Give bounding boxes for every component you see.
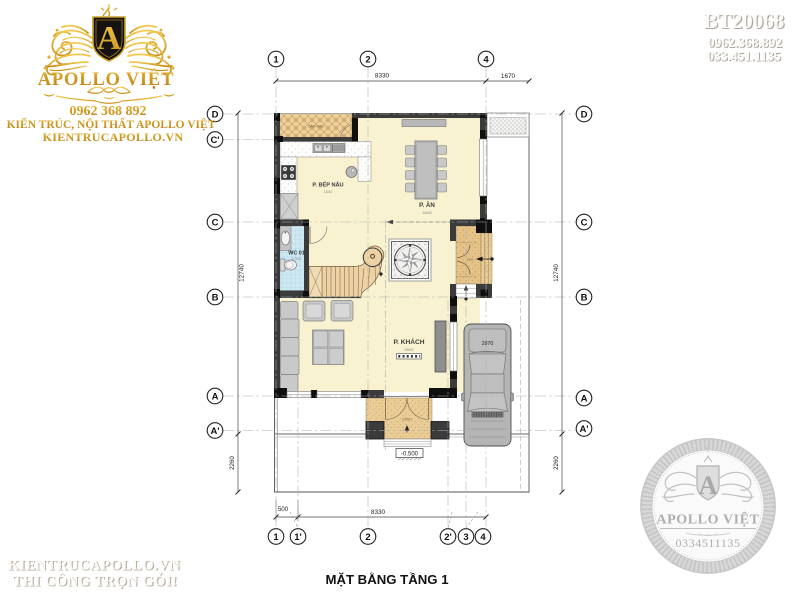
svg-text:12740: 12740 bbox=[239, 264, 246, 282]
svg-text:C': C' bbox=[210, 135, 219, 146]
svg-text:11M2: 11M2 bbox=[324, 190, 333, 194]
svg-text:A: A bbox=[699, 471, 718, 500]
svg-text:1': 1' bbox=[294, 532, 302, 543]
svg-text:2: 2 bbox=[365, 54, 370, 65]
svg-text:1670: 1670 bbox=[501, 73, 516, 80]
svg-text:SẢNH: SẢNH bbox=[402, 417, 412, 422]
svg-text:BT20068: BT20068 bbox=[704, 9, 785, 33]
svg-text:1: 1 bbox=[273, 532, 279, 543]
svg-text:KIẾN TRÚC, NỘI THẤT APOLLO VIỆ: KIẾN TRÚC, NỘI THẤT APOLLO VIỆT bbox=[7, 116, 216, 131]
svg-text:8330: 8330 bbox=[371, 509, 386, 516]
svg-text:C: C bbox=[212, 217, 219, 228]
svg-text:0334511135: 0334511135 bbox=[675, 536, 740, 550]
svg-text:P. BẾP NẤU: P. BẾP NẤU bbox=[312, 182, 343, 189]
svg-text:4: 4 bbox=[480, 532, 486, 543]
svg-text:KIENTRUCAPOLLO.VN: KIENTRUCAPOLLO.VN bbox=[43, 130, 184, 144]
svg-text:APOLLO VIỆT: APOLLO VIỆT bbox=[38, 68, 174, 90]
svg-text:1: 1 bbox=[273, 54, 279, 65]
svg-text:APOLLO VIỆT: APOLLO VIỆT bbox=[656, 511, 759, 528]
svg-text:2: 2 bbox=[365, 532, 370, 543]
svg-text:4: 4 bbox=[483, 54, 489, 65]
svg-text:3.2M2: 3.2M2 bbox=[292, 257, 302, 261]
svg-text:2260: 2260 bbox=[229, 456, 236, 470]
svg-text:WC 01: WC 01 bbox=[288, 251, 304, 257]
svg-text:8330: 8330 bbox=[375, 73, 390, 80]
svg-text:12740: 12740 bbox=[553, 264, 560, 282]
svg-text:P. ĂN: P. ĂN bbox=[419, 202, 435, 209]
svg-text:KIENTRUCAPOLLO.VN: KIENTRUCAPOLLO.VN bbox=[8, 558, 180, 574]
svg-text:500: 500 bbox=[278, 506, 289, 513]
svg-text:A': A' bbox=[579, 424, 588, 435]
svg-text:A: A bbox=[212, 391, 219, 402]
svg-text:A: A bbox=[581, 393, 588, 404]
svg-text:P. KHÁCH: P. KHÁCH bbox=[393, 337, 424, 346]
svg-text:033.451.1135: 033.451.1135 bbox=[707, 49, 781, 64]
svg-text:2870: 2870 bbox=[482, 341, 494, 347]
svg-text:D: D bbox=[581, 109, 588, 120]
svg-text:MẶT BẰNG TẦNG 1: MẶT BẰNG TẦNG 1 bbox=[325, 572, 448, 587]
svg-text:1500: 1500 bbox=[467, 258, 474, 262]
svg-text:A: A bbox=[97, 20, 122, 57]
svg-text:2260: 2260 bbox=[553, 456, 560, 470]
svg-text:0962 368 892: 0962 368 892 bbox=[70, 104, 147, 119]
svg-text:C: C bbox=[581, 217, 588, 228]
svg-text:A': A' bbox=[210, 426, 219, 437]
svg-text:16M2: 16M2 bbox=[422, 211, 432, 215]
svg-text:-0.500: -0.500 bbox=[401, 452, 419, 458]
svg-text:B: B bbox=[581, 292, 588, 303]
svg-text:2': 2' bbox=[444, 532, 452, 543]
svg-text:THI CÔNG TRỌN GÓI!: THI CÔNG TRỌN GÓI! bbox=[13, 573, 178, 590]
svg-text:3: 3 bbox=[463, 532, 468, 543]
svg-text:28M2: 28M2 bbox=[404, 348, 414, 352]
svg-text:SÂN SAU: SÂN SAU bbox=[308, 125, 324, 129]
svg-text:B: B bbox=[212, 292, 219, 303]
